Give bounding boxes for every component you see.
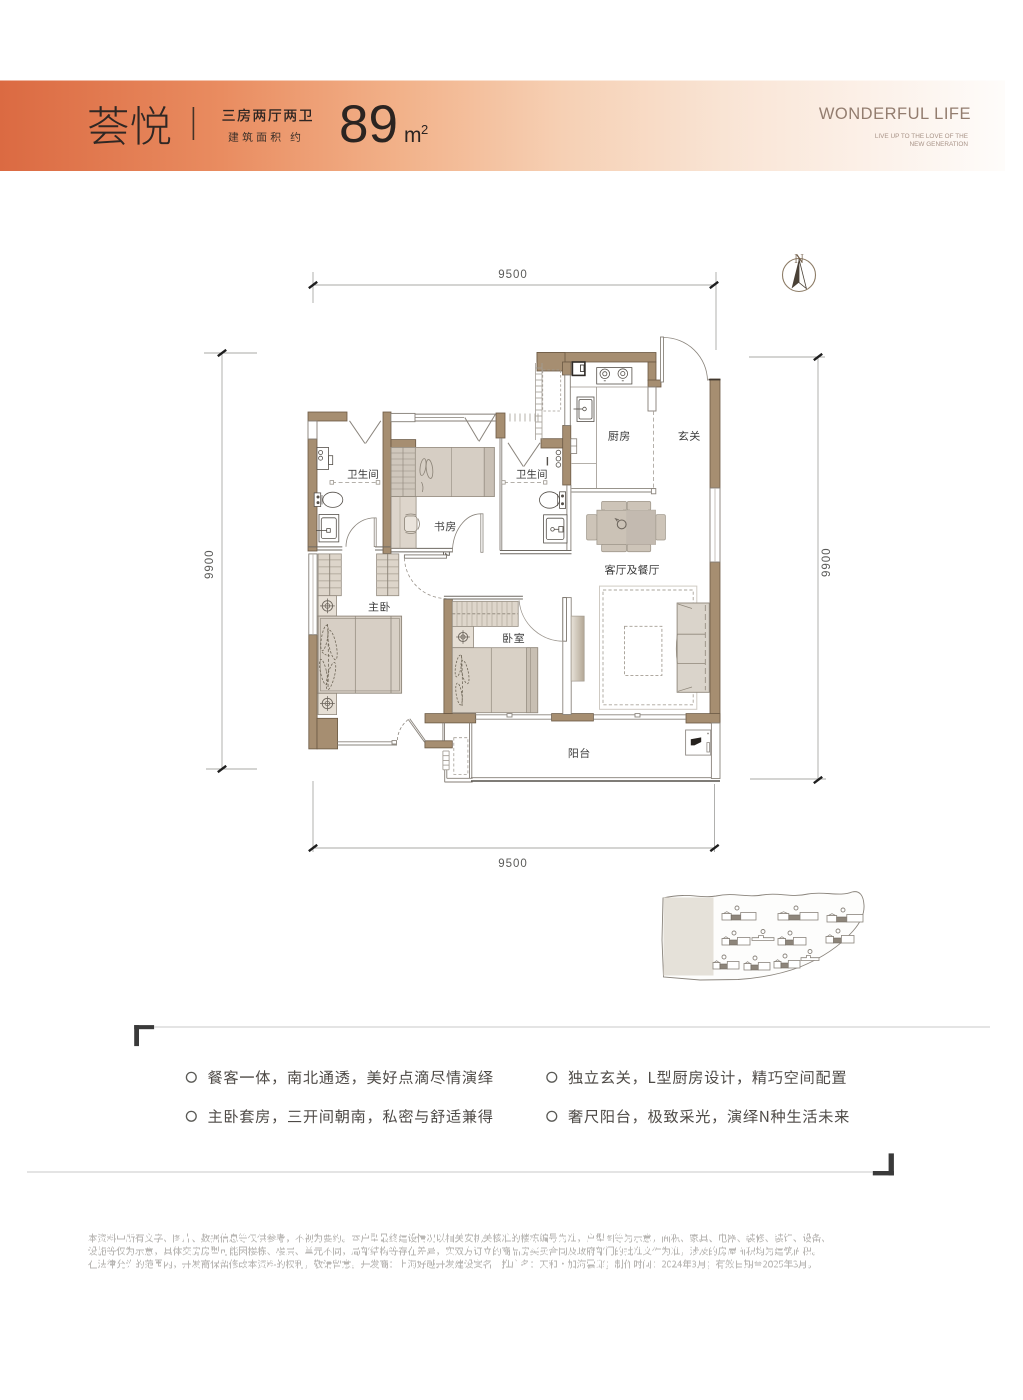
svg-text:2: 2 — [421, 122, 428, 137]
svg-text:9900: 9900 — [821, 547, 833, 577]
svg-text:89: 89 — [339, 95, 398, 154]
svg-text:NEW GENERATION: NEW GENERATION — [910, 141, 969, 148]
svg-text:9500: 9500 — [498, 269, 528, 281]
svg-text:WONDERFUL LIFE: WONDERFUL LIFE — [819, 105, 971, 123]
svg-text:9500: 9500 — [498, 858, 528, 870]
svg-text:9900: 9900 — [204, 549, 216, 579]
svg-text:LIVE UP TO THE LOVE OF THE: LIVE UP TO THE LOVE OF THE — [875, 133, 968, 140]
svg-text:m: m — [404, 124, 422, 147]
